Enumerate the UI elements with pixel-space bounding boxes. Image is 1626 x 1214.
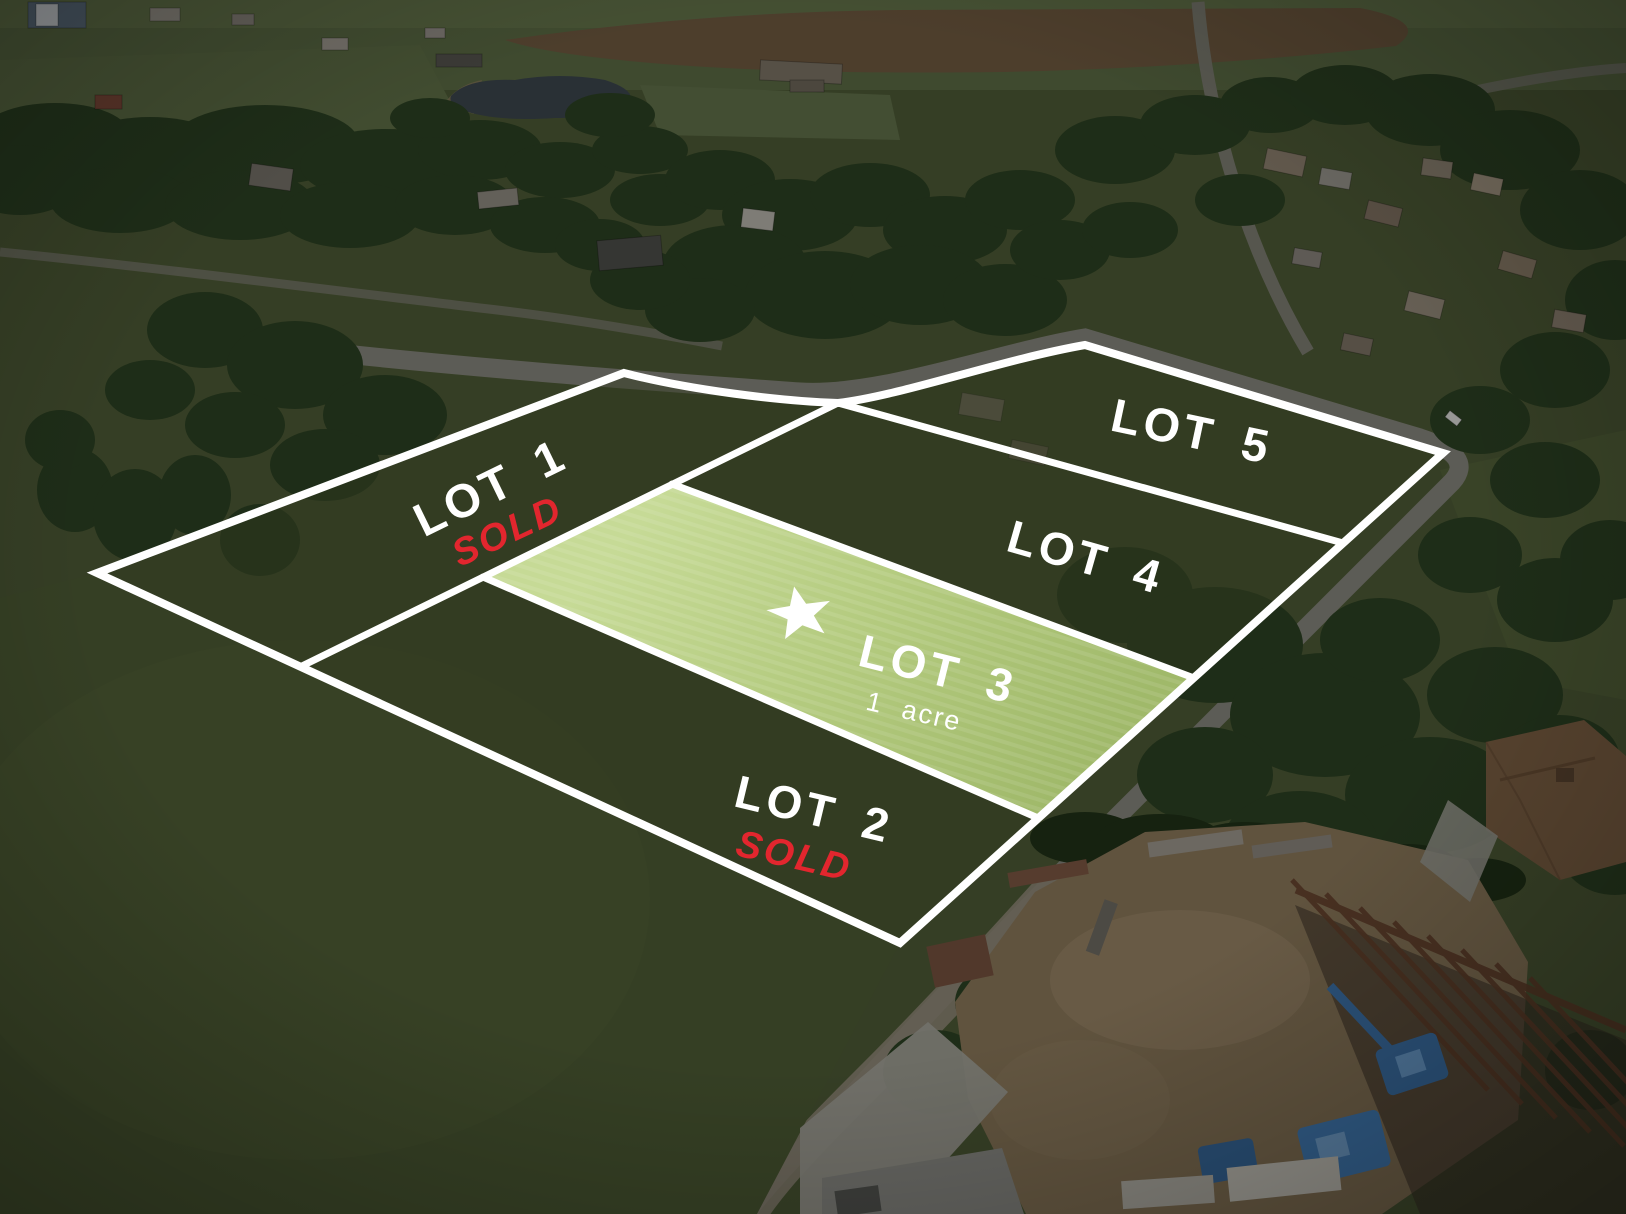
aerial-photo xyxy=(0,0,1626,1214)
aerial-lot-map: LOT 1 SOLD LOT 2 SOLD LOT 3 1 acre LOT 4… xyxy=(0,0,1626,1214)
